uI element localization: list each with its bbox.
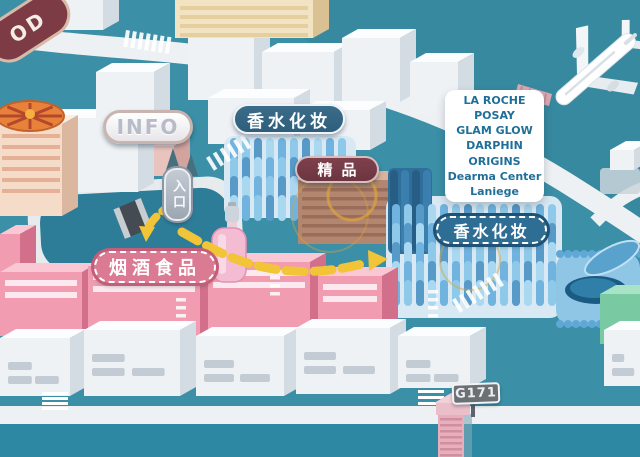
duty-free-shopping-map: OD INFO 入口 香水化妆 精品 烟酒食品 香水化妆 LA ROCHE PO…: [0, 0, 640, 457]
sign-tobacco-label: 烟酒食品: [109, 254, 201, 280]
sign-gate-g171: G171: [452, 382, 501, 405]
brand-name: ORIGINS: [468, 154, 520, 169]
carousel-building: [0, 101, 78, 216]
brand-list-card: LA ROCHE POSAY GLAM GLOW DARPHIN ORIGINS…: [445, 90, 544, 202]
brand-name: POSAY: [474, 108, 515, 123]
sign-corner-label: OD: [5, 6, 51, 48]
sign-info-label: INFO: [117, 115, 180, 139]
sign-entrance: 入口: [164, 168, 191, 221]
brand-name: Laniege: [470, 184, 519, 199]
sign-perfume-cosmetics-upper: 香水化妆: [233, 104, 345, 134]
sign-boutique-label: 精品: [308, 159, 365, 180]
cream-building: [175, 0, 329, 38]
sign-perfume-upper-label: 香水化妆: [247, 107, 331, 132]
brand-name: Dearma Center: [448, 169, 542, 184]
brand-name: GLAM GLOW: [456, 123, 532, 138]
sign-perfume-lower-label: 香水化妆: [453, 218, 529, 242]
sign-boutique: 精品: [295, 156, 379, 183]
sign-entrance-label: 入口: [168, 179, 187, 211]
sign-info: INFO: [103, 110, 193, 144]
sign-perfume-cosmetics-lower: 香水化妆: [436, 216, 547, 244]
sign-tobacco-liquor-food: 烟酒食品: [94, 251, 216, 283]
sign-gate-label: G171: [455, 385, 497, 401]
brand-name: LA ROCHE: [464, 93, 526, 108]
brand-name: DARPHIN: [466, 138, 523, 153]
